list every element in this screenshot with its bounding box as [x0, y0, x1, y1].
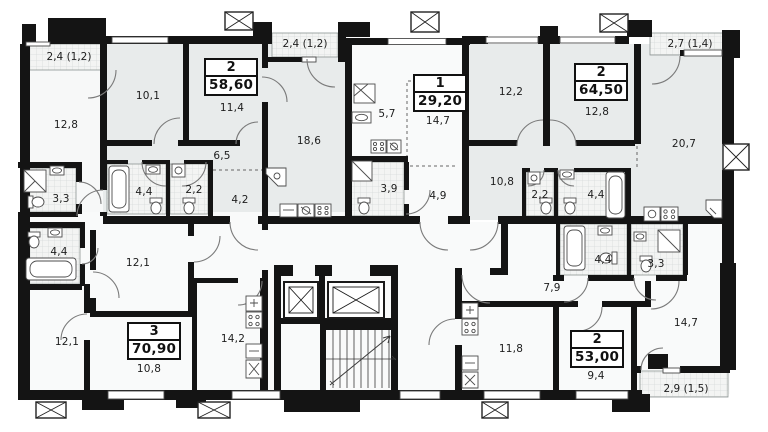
washer-icon	[528, 172, 540, 184]
kitchen-unit-icon	[246, 296, 262, 311]
stove-icon	[462, 319, 478, 335]
kitchen-unit-icon	[462, 356, 478, 370]
xbox-icon	[482, 402, 508, 418]
kitchen-sink-icon	[298, 204, 314, 217]
bath-4-4-apt70: 4,4	[50, 246, 67, 258]
kitchen-5-7-apt29: 5,7	[378, 108, 395, 120]
wc-2-2-apt64: 2,2	[531, 189, 548, 201]
sink-icon	[598, 226, 612, 235]
sink-icon	[48, 228, 62, 237]
hall-4-2-apt58: 4,2	[231, 194, 248, 206]
elevator-icons	[284, 282, 384, 318]
room-14-7-apt29: 14,7	[426, 115, 450, 127]
floor-plan-drawing	[0, 0, 768, 432]
xbox-icon	[225, 12, 253, 30]
toilet-icon	[150, 198, 162, 214]
washer-icon	[172, 164, 185, 177]
apartment-area: 70,90	[129, 341, 179, 358]
bath-4-4-apt53: 4,4	[594, 254, 611, 266]
room-14-7-apt53: 14,7	[674, 317, 698, 329]
shower-icon	[658, 230, 680, 252]
bathtub-icon	[564, 226, 585, 270]
sink-icon	[50, 166, 64, 175]
living-18-6-apt58: 18,6	[297, 135, 321, 147]
xbox-icon	[198, 402, 230, 418]
bath-4-4-apt64: 4,4	[587, 189, 604, 201]
kitchen-sink-icon	[387, 140, 401, 153]
floor-plan: 12,8 10,1 11,4 6,5 4,4 2,2 4,2 18,6 5,7 …	[0, 0, 768, 432]
xbox-icon	[600, 14, 628, 32]
bathtub-icon	[26, 258, 76, 280]
sink-icon	[560, 170, 574, 179]
corner-unit-icon	[462, 372, 478, 388]
room-10-1-apt58: 10,1	[136, 90, 160, 102]
toilet-icon	[28, 196, 44, 208]
apartment-card-53-00: 2 53,00	[570, 330, 624, 368]
kitchen-14-2-apt70: 14,2	[221, 333, 245, 345]
bath-3-9-apt29: 3,9	[380, 183, 397, 195]
hall-4-9-apt29: 4,9	[429, 190, 446, 202]
apartment-card-64-50: 2 64,50	[574, 63, 628, 101]
xbox-icon	[411, 12, 439, 32]
bath-3-3-apt53: 3,3	[647, 258, 664, 270]
room-12-8-apt70: 12,8	[54, 119, 78, 131]
apartment-rooms: 2	[206, 60, 256, 77]
bathtub-icon	[109, 166, 129, 212]
apartment-rooms: 2	[572, 332, 622, 349]
balcony-label-3: 2,7 (1,4)	[668, 38, 713, 50]
sink-icon	[352, 112, 371, 123]
kitchen-11-8-apt53: 11,8	[499, 343, 523, 355]
apartment-card-70-90: 3 70,90	[127, 322, 181, 360]
room-11-4-apt58: 11,4	[220, 102, 244, 114]
hall-10-8-apt70: 10,8	[137, 363, 161, 375]
toilet-icon	[358, 198, 370, 214]
apartment-area: 64,50	[576, 82, 626, 99]
elevator-2-icon	[328, 282, 384, 318]
toilet-icon	[564, 198, 576, 214]
apartment-area: 29,20	[415, 93, 465, 110]
apartment-rooms: 2	[576, 65, 626, 82]
apartment-card-29-20: 1 29,20	[413, 74, 467, 112]
hall-6-5-apt58: 6,5	[213, 150, 230, 162]
elevator-1-icon	[284, 282, 318, 318]
shower-icon	[352, 161, 372, 181]
shower-icon	[24, 170, 46, 192]
stove-icon	[315, 204, 331, 217]
bath-3-3-apt70: 3,3	[52, 193, 69, 205]
room-12-8-apt64: 12,8	[585, 106, 609, 118]
apartment-area: 58,60	[206, 77, 256, 94]
corner-unit-icon	[246, 360, 262, 378]
room-12-1-b-apt70: 12,1	[55, 336, 79, 348]
apartment-rooms: 3	[129, 324, 179, 341]
stove-icon	[371, 140, 386, 153]
sink-icon	[634, 232, 646, 241]
room-12-2-apt64: 12,2	[499, 86, 523, 98]
xbox-icon	[36, 402, 66, 418]
balcony-label-4: 2,9 (1,5)	[664, 383, 709, 395]
kitchen-unit-icon	[280, 204, 297, 217]
wc-2-2-apt58: 2,2	[185, 184, 202, 196]
kitchen-unit-icon	[462, 303, 478, 318]
xbox-icon	[723, 144, 749, 170]
balcony-label-1: 2,4 (1,2)	[47, 51, 92, 63]
hall-7-9-apt53: 7,9	[543, 282, 560, 294]
room-9-4-apt53: 9,4	[587, 370, 604, 382]
toilet-icon	[183, 198, 195, 214]
apartment-rooms: 1	[415, 76, 465, 93]
hall-10-8-apt64: 10,8	[490, 176, 514, 188]
balcony-label-2: 2,4 (1,2)	[283, 38, 328, 50]
bathtub-icon	[606, 172, 625, 218]
apartment-area: 53,00	[572, 349, 622, 366]
room-12-1-a-apt70: 12,1	[126, 257, 150, 269]
living-20-7-apt64: 20,7	[672, 138, 696, 150]
stove-icon	[246, 312, 262, 328]
stove-icon	[661, 207, 678, 221]
toilet-icon	[28, 232, 40, 248]
kitchen-sink-icon	[644, 207, 660, 221]
sink-icon	[146, 165, 160, 174]
kitchen-unit-icon	[246, 344, 262, 358]
apartment-card-58-60: 2 58,60	[204, 58, 258, 96]
fridge-icon	[354, 84, 375, 103]
bath-4-4-apt58: 4,4	[135, 186, 152, 198]
